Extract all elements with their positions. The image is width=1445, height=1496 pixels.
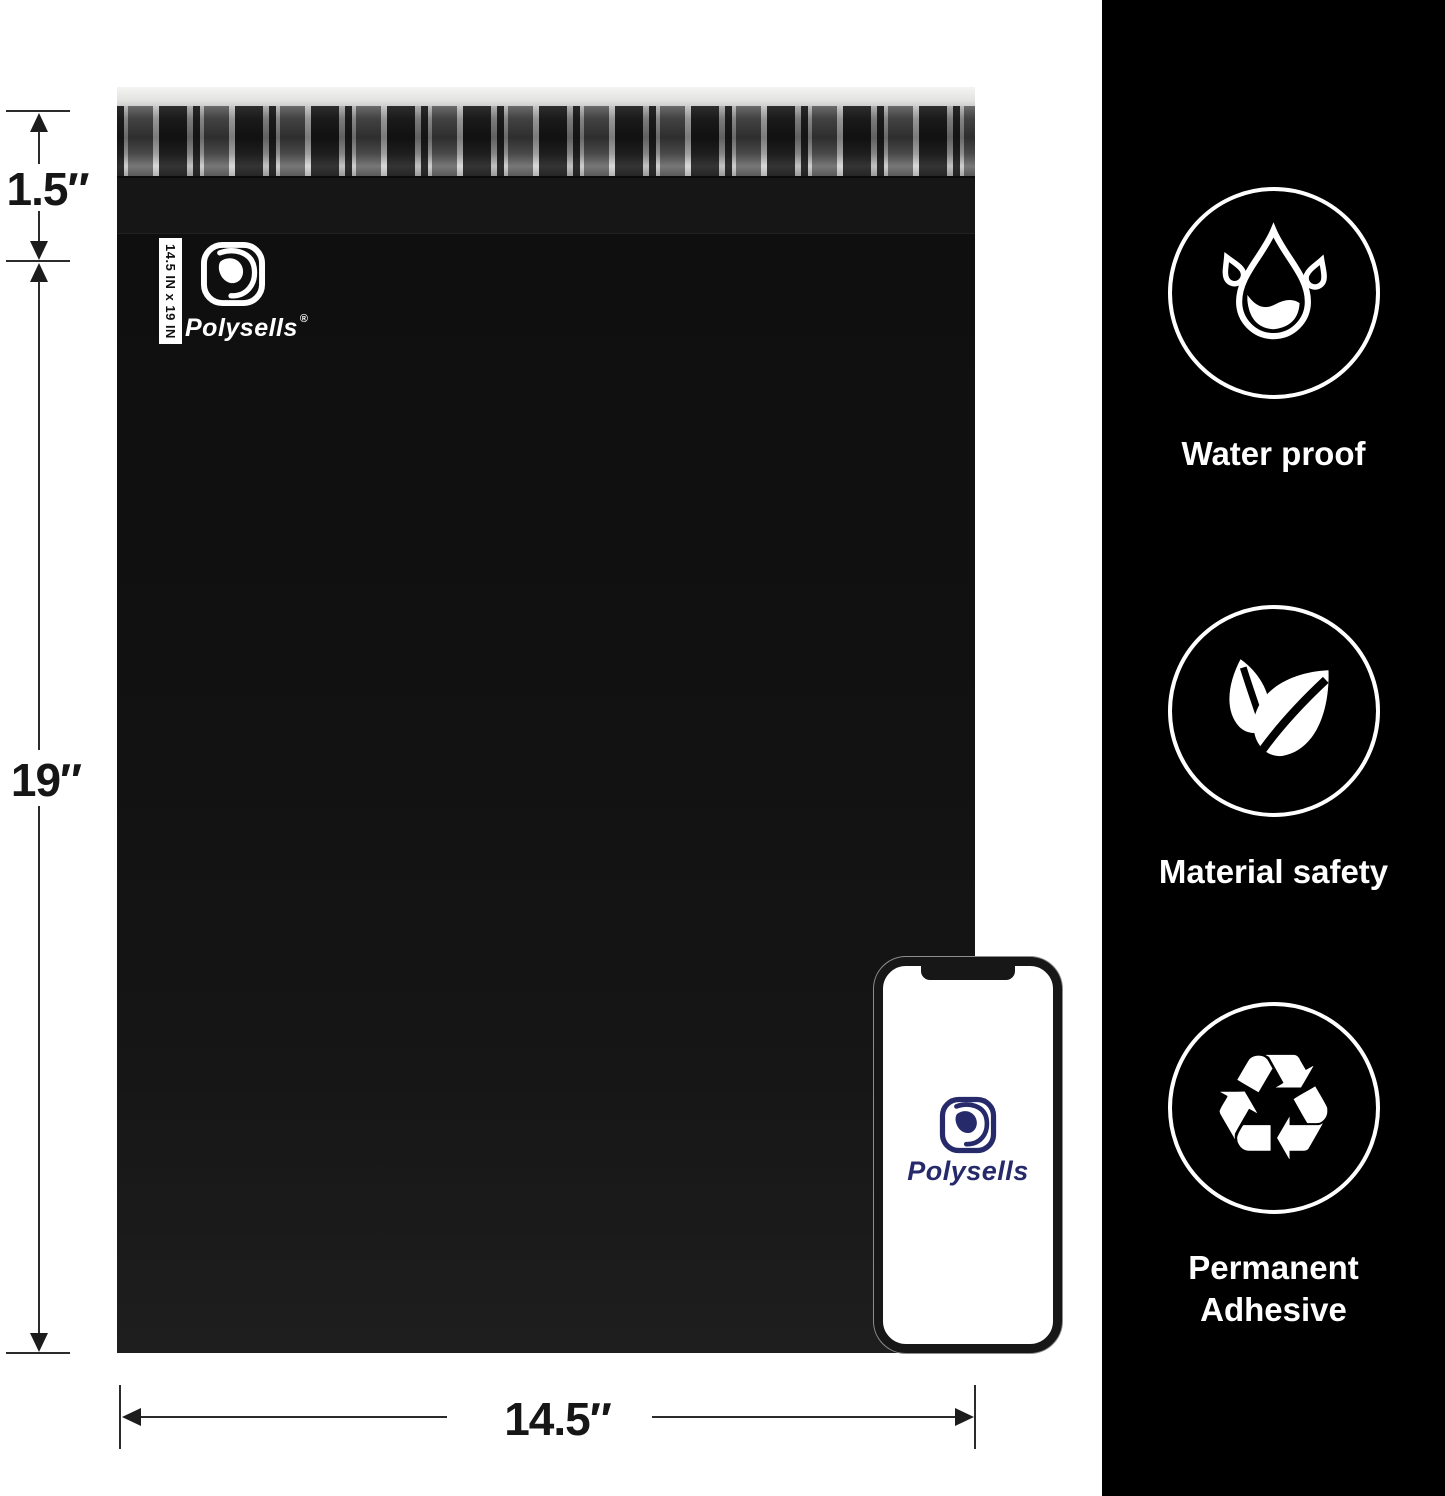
flap-height-label: 1.5″ bbox=[0, 162, 95, 216]
phone-screen: Polysells bbox=[883, 966, 1053, 1344]
registered-mark: ® bbox=[300, 313, 309, 325]
arrow-up-icon bbox=[30, 263, 48, 282]
arrow-down-icon bbox=[30, 241, 48, 260]
dimension-line bbox=[38, 281, 40, 750]
bag-flap bbox=[117, 178, 975, 234]
dimension-line bbox=[38, 131, 40, 164]
arrow-right-icon bbox=[955, 1408, 974, 1426]
dimension-tick bbox=[974, 1385, 976, 1449]
dimension-line bbox=[38, 806, 40, 1335]
bag-height-label: 19″ bbox=[0, 753, 92, 807]
arrow-left-icon bbox=[122, 1408, 141, 1426]
feature-label-material-safety: Material safety bbox=[1102, 851, 1445, 893]
dimension-tick bbox=[119, 1385, 121, 1449]
polysells-logo-icon bbox=[200, 237, 266, 316]
recycle-icon: ♻ bbox=[1207, 1034, 1340, 1182]
product-infographic: 14.5 IN x 19 IN Polysells® 1.5″ 19″ 14.5… bbox=[0, 0, 1445, 1496]
arrow-up-icon bbox=[30, 113, 48, 132]
size-tag-label: 14.5 IN x 19 IN bbox=[159, 238, 182, 344]
feature-circle-permanent-adhesive: ♻ bbox=[1168, 1002, 1380, 1214]
feature-circle-material-safety bbox=[1168, 605, 1380, 817]
poly-mailer-bag: 14.5 IN x 19 IN Polysells® bbox=[117, 87, 975, 1353]
phone-brand-text: Polysells bbox=[907, 1156, 1029, 1187]
feature-label-waterproof: Water proof bbox=[1102, 433, 1445, 475]
dimension-line bbox=[652, 1416, 955, 1418]
dimension-line bbox=[141, 1416, 447, 1418]
leaves-icon bbox=[1191, 629, 1356, 794]
feature-sidebar: Water proof Material safety ♻ Permanent … bbox=[1102, 0, 1445, 1496]
bag-width-label: 14.5″ bbox=[460, 1392, 655, 1446]
water-drop-icon bbox=[1191, 211, 1356, 376]
arrow-down-icon bbox=[30, 1333, 48, 1352]
phone-polysells-logo-icon bbox=[939, 1096, 997, 1154]
dimension-tick bbox=[6, 110, 70, 112]
smartphone: Polysells bbox=[874, 957, 1062, 1353]
bag-brand-text: Polysells® bbox=[185, 313, 309, 343]
dimension-line bbox=[38, 211, 40, 242]
release-liner-strip bbox=[117, 87, 975, 106]
dimension-tick bbox=[6, 1352, 70, 1354]
brand-name: Polysells bbox=[185, 314, 298, 342]
dimension-tick bbox=[6, 260, 70, 262]
feature-label-permanent-adhesive: Permanent Adhesive bbox=[1154, 1247, 1394, 1331]
feature-circle-waterproof bbox=[1168, 187, 1380, 399]
adhesive-seal-strip bbox=[117, 106, 975, 178]
